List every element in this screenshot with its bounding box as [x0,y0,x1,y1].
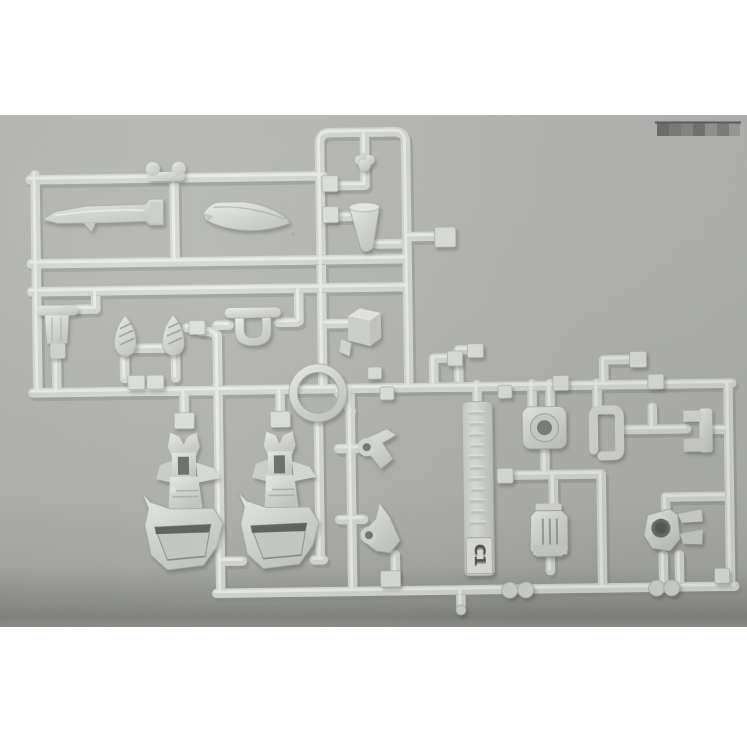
page: { "scene": { "description": "Product pho… [0,0,747,747]
photo-grain [0,115,747,627]
product-photo: C1 C1 [0,115,747,627]
sprue-photo-svg: C1 C1 [0,115,747,627]
